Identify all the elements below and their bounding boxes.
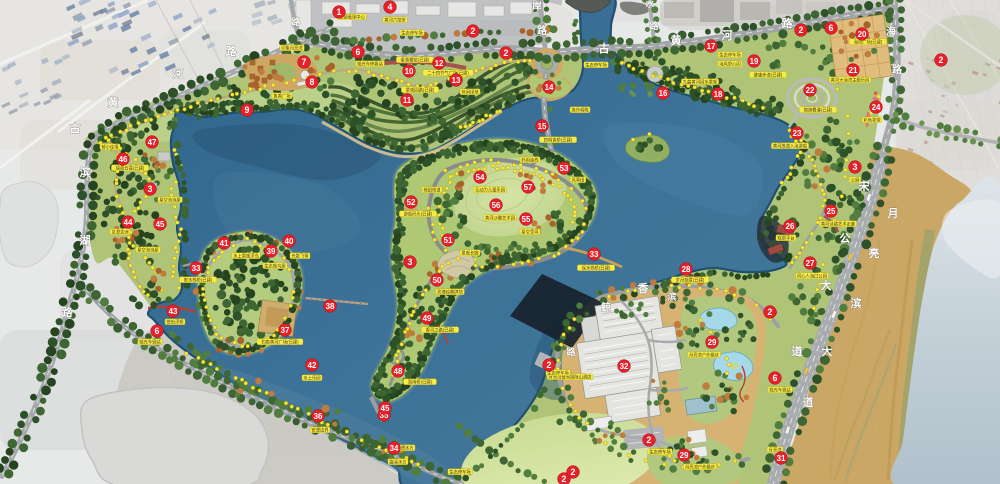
svg-text:13: 13 bbox=[452, 76, 461, 85]
svg-text:星空泡泡屋: 星空泡泡屋 bbox=[159, 197, 181, 204]
svg-text:31: 31 bbox=[777, 454, 786, 463]
svg-text:6: 6 bbox=[773, 373, 778, 383]
svg-text:道: 道 bbox=[792, 344, 803, 358]
svg-text:2: 2 bbox=[471, 26, 476, 36]
svg-text:古: 古 bbox=[599, 41, 610, 55]
svg-text:2: 2 bbox=[562, 474, 567, 484]
svg-text:鱼香广场: 鱼香广场 bbox=[273, 93, 291, 100]
svg-text:53: 53 bbox=[560, 164, 569, 173]
svg-text:42: 42 bbox=[308, 361, 317, 370]
svg-text:大: 大 bbox=[821, 278, 832, 292]
svg-text:1: 1 bbox=[337, 7, 342, 17]
svg-text:19: 19 bbox=[750, 57, 759, 66]
svg-text:水: 水 bbox=[645, 0, 655, 9]
svg-text:17: 17 bbox=[707, 42, 716, 51]
svg-text:星空草坪: 星空草坪 bbox=[521, 229, 539, 236]
svg-text:2: 2 bbox=[799, 25, 804, 35]
svg-text:34: 34 bbox=[390, 444, 399, 453]
svg-text:黄: 黄 bbox=[108, 95, 119, 109]
svg-text:大: 大 bbox=[822, 344, 833, 358]
svg-text:玫瑰经典牌坊: 玫瑰经典牌坊 bbox=[437, 289, 463, 296]
svg-text:54: 54 bbox=[476, 173, 485, 182]
svg-text:57: 57 bbox=[524, 183, 533, 192]
svg-text:郁小佳境: 郁小佳境 bbox=[101, 144, 119, 151]
svg-text:路: 路 bbox=[649, 20, 659, 31]
svg-text:曲溪水方: 曲溪水方 bbox=[389, 459, 407, 466]
svg-text:6: 6 bbox=[155, 326, 160, 336]
svg-text:黄河六馆堂: 黄河六馆堂 bbox=[384, 17, 406, 24]
svg-text:27: 27 bbox=[806, 259, 815, 268]
svg-text:路: 路 bbox=[226, 44, 238, 58]
svg-text:黄河沙雕艺术园: 黄河沙雕艺术园 bbox=[485, 215, 515, 222]
svg-text:11: 11 bbox=[403, 96, 412, 105]
svg-text:22: 22 bbox=[806, 86, 815, 95]
svg-text:月亮湾户外婚庆: 月亮湾户外婚庆 bbox=[685, 464, 716, 471]
svg-text:2: 2 bbox=[571, 467, 576, 477]
svg-text:滨: 滨 bbox=[667, 291, 676, 302]
svg-text:月: 月 bbox=[887, 207, 899, 220]
svg-text:46: 46 bbox=[119, 155, 128, 164]
svg-text:2: 2 bbox=[939, 55, 944, 65]
svg-text:香: 香 bbox=[637, 281, 650, 295]
svg-text:36: 36 bbox=[314, 412, 323, 421]
svg-text:45: 45 bbox=[381, 404, 390, 413]
svg-text:景观园路(已建): 景观园路(已建) bbox=[406, 87, 435, 94]
svg-text:无动力儿童乐园: 无动力儿童乐园 bbox=[475, 187, 505, 194]
svg-text:印象月亮湾: 印象月亮湾 bbox=[281, 45, 303, 52]
svg-text:2: 2 bbox=[647, 435, 652, 445]
svg-text:12: 12 bbox=[435, 59, 444, 68]
svg-text:29: 29 bbox=[680, 451, 689, 460]
svg-text:3: 3 bbox=[853, 162, 858, 172]
svg-text:25: 25 bbox=[827, 207, 836, 216]
svg-text:路: 路 bbox=[291, 16, 301, 27]
svg-text:生态停车场: 生态停车场 bbox=[585, 62, 607, 69]
svg-text:生态停车场: 生态停车场 bbox=[649, 449, 671, 456]
svg-text:40: 40 bbox=[285, 237, 294, 246]
svg-text:生态观鸟屋: 生态观鸟屋 bbox=[264, 263, 286, 270]
svg-text:安漫边界: 安漫边界 bbox=[311, 427, 329, 434]
svg-text:24: 24 bbox=[872, 103, 881, 112]
svg-text:48: 48 bbox=[394, 367, 403, 376]
svg-text:33: 33 bbox=[590, 250, 599, 259]
svg-text:黄: 黄 bbox=[671, 33, 682, 47]
svg-text:悦怡浮桥: 悦怡浮桥 bbox=[166, 319, 184, 326]
svg-text:安水栈桥(已建): 安水栈桥(已建) bbox=[184, 277, 213, 284]
svg-text:4: 4 bbox=[388, 2, 393, 12]
svg-text:9: 9 bbox=[245, 105, 250, 115]
svg-text:路: 路 bbox=[537, 24, 548, 37]
svg-text:39: 39 bbox=[267, 247, 276, 256]
svg-text:镜面云霞(已建): 镜面云霞(已建) bbox=[116, 165, 145, 172]
svg-text:彩色花带: 彩色花带 bbox=[863, 117, 881, 124]
svg-text:湖: 湖 bbox=[80, 233, 91, 247]
svg-text:保水栈桥(已建): 保水栈桥(已建) bbox=[582, 265, 611, 272]
svg-text:星空泡泡屋: 星空泡泡屋 bbox=[137, 247, 159, 254]
svg-text:四明直桥(已建): 四明直桥(已建) bbox=[544, 137, 573, 144]
svg-text:49: 49 bbox=[423, 314, 432, 323]
svg-text:18: 18 bbox=[714, 90, 723, 99]
svg-text:滨: 滨 bbox=[851, 296, 862, 310]
svg-text:景观长廊: 景观长廊 bbox=[461, 250, 479, 257]
svg-text:2: 2 bbox=[768, 307, 773, 317]
svg-text:黄河大海湾主题乐园: 黄河大海湾主题乐园 bbox=[831, 77, 870, 84]
svg-text:2: 2 bbox=[547, 360, 552, 370]
svg-text:水上乐园: 水上乐园 bbox=[303, 375, 320, 382]
svg-text:公: 公 bbox=[840, 232, 851, 245]
svg-text:锦旗叠瀑(已建): 锦旗叠瀑(已建) bbox=[804, 107, 833, 114]
svg-text:黄河诗路艺术走廊: 黄河诗路艺术走廊 bbox=[821, 221, 856, 228]
svg-text:休闲绿地: 休闲绿地 bbox=[461, 89, 479, 96]
svg-text:河: 河 bbox=[173, 66, 184, 80]
svg-text:海风广场(已建): 海风广场(已建) bbox=[854, 39, 883, 46]
svg-text:3: 3 bbox=[408, 257, 413, 267]
svg-text:生态停车场: 生态停车场 bbox=[719, 52, 741, 59]
svg-text:海: 海 bbox=[886, 25, 896, 38]
svg-text:3: 3 bbox=[148, 184, 153, 194]
svg-text:光影飞雪: 光影飞雪 bbox=[291, 253, 308, 260]
svg-text:47: 47 bbox=[148, 138, 157, 147]
svg-text:海风舒心园: 海风舒心园 bbox=[719, 61, 740, 68]
svg-text:生态停车场: 生态停车场 bbox=[449, 469, 471, 476]
svg-text:路: 路 bbox=[566, 346, 576, 357]
svg-text:古: 古 bbox=[70, 121, 81, 135]
svg-text:岁月观景(已建): 岁月观景(已建) bbox=[676, 277, 705, 284]
svg-text:亮: 亮 bbox=[869, 246, 880, 260]
svg-text:路: 路 bbox=[62, 305, 74, 319]
svg-text:7: 7 bbox=[302, 57, 307, 67]
svg-text:33: 33 bbox=[192, 264, 201, 273]
svg-text:滨: 滨 bbox=[80, 165, 91, 179]
svg-text:观光车驿站: 观光车驿站 bbox=[769, 387, 791, 394]
svg-text:50: 50 bbox=[433, 276, 442, 285]
svg-text:55: 55 bbox=[522, 215, 531, 224]
svg-text:32: 32 bbox=[620, 362, 629, 371]
svg-text:21: 21 bbox=[849, 66, 858, 75]
svg-text:梯田栈道: 梯田栈道 bbox=[423, 187, 441, 194]
svg-text:河: 河 bbox=[722, 28, 733, 42]
svg-text:28: 28 bbox=[682, 265, 691, 274]
svg-text:渔舟唱晚: 渔舟唱晚 bbox=[571, 107, 589, 114]
svg-text:29: 29 bbox=[708, 338, 717, 347]
svg-text:6: 6 bbox=[829, 23, 834, 33]
svg-text:38: 38 bbox=[326, 302, 335, 311]
svg-text:路: 路 bbox=[782, 16, 794, 30]
svg-text:同心人海口公园: 同心人海口公园 bbox=[797, 273, 827, 280]
svg-text:水上景观浮岛: 水上景观浮岛 bbox=[233, 253, 259, 260]
svg-text:23: 23 bbox=[793, 129, 802, 138]
svg-text:览澄念洲: 览澄念洲 bbox=[111, 229, 128, 236]
svg-text:黄河故道入海游船: 黄河故道入海游船 bbox=[773, 143, 808, 150]
svg-text:2: 2 bbox=[504, 48, 509, 58]
svg-text:观景平台: 观景平台 bbox=[777, 235, 794, 242]
svg-text:51: 51 bbox=[444, 236, 453, 245]
svg-text:钓鱼黄河广场(已建): 钓鱼黄河广场(已建) bbox=[261, 339, 299, 346]
svg-text:16: 16 bbox=[659, 89, 668, 98]
svg-text:香河之路(已建): 香河之路(已建) bbox=[426, 327, 455, 334]
svg-text:41: 41 bbox=[220, 239, 229, 248]
svg-text:九曲黄河园水景观: 九曲黄河园水景观 bbox=[683, 79, 718, 86]
svg-text:观光车驿站: 观光车驿站 bbox=[139, 339, 161, 346]
svg-text:37: 37 bbox=[281, 326, 290, 335]
svg-text:路: 路 bbox=[892, 63, 903, 76]
svg-text:8: 8 bbox=[310, 77, 315, 87]
svg-text:月亮湾户外婚庆: 月亮湾户外婚庆 bbox=[689, 352, 720, 359]
svg-text:10: 10 bbox=[405, 67, 414, 76]
svg-text:45: 45 bbox=[156, 220, 165, 229]
svg-text:43: 43 bbox=[169, 307, 178, 316]
svg-text:14: 14 bbox=[545, 83, 554, 92]
svg-text:风筝田: 风筝田 bbox=[572, 177, 585, 184]
svg-text:生态停车场: 生态停车场 bbox=[401, 30, 423, 37]
svg-text:到闸桥(已建): 到闸桥(已建) bbox=[408, 379, 433, 386]
svg-text:二十四节气广场(已建): 二十四节气广场(已建) bbox=[427, 70, 469, 77]
svg-text:观光车停靠站: 观光车停靠站 bbox=[357, 61, 383, 68]
svg-text:妈祖庙栈: 妈祖庙栈 bbox=[521, 157, 539, 164]
svg-text:鲸: 鲸 bbox=[601, 301, 611, 314]
svg-text:垂香樱花(已建): 垂香樱花(已建) bbox=[401, 57, 430, 64]
svg-text:道: 道 bbox=[803, 395, 814, 409]
svg-text:44: 44 bbox=[124, 218, 133, 227]
svg-text:20: 20 bbox=[858, 30, 867, 39]
svg-text:52: 52 bbox=[407, 198, 416, 207]
svg-text:6: 6 bbox=[356, 47, 361, 57]
svg-text:15: 15 bbox=[538, 122, 547, 131]
svg-text:26: 26 bbox=[786, 222, 795, 231]
svg-text:健康步道(已建): 健康步道(已建) bbox=[754, 72, 783, 79]
svg-text:56: 56 bbox=[492, 201, 501, 210]
svg-text:岸: 岸 bbox=[532, 0, 542, 13]
svg-text:游船码头(已建): 游船码头(已建) bbox=[404, 211, 433, 218]
